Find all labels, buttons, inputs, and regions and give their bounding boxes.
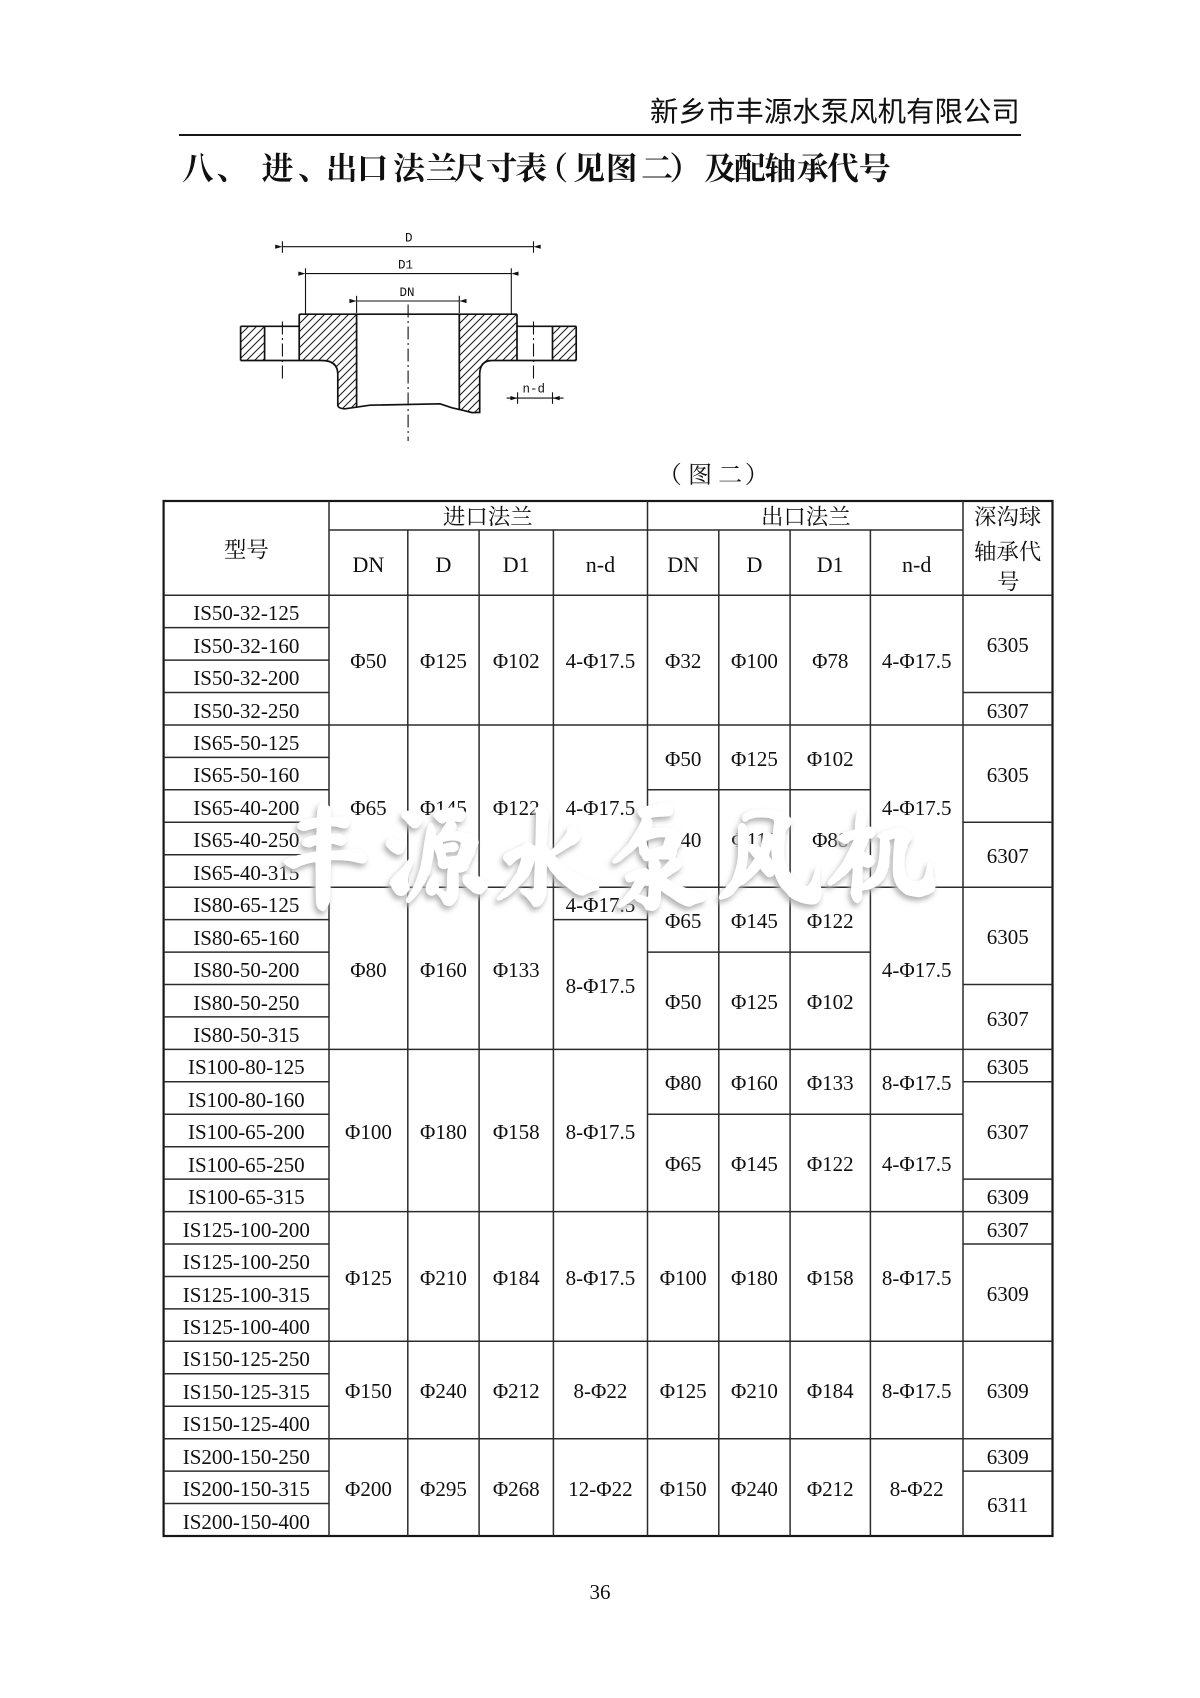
svg-text:D1: D1 [398, 259, 413, 273]
svg-text:n-d: n-d [523, 383, 546, 397]
svg-text:D: D [405, 232, 413, 246]
svg-text:DN: DN [400, 286, 415, 300]
